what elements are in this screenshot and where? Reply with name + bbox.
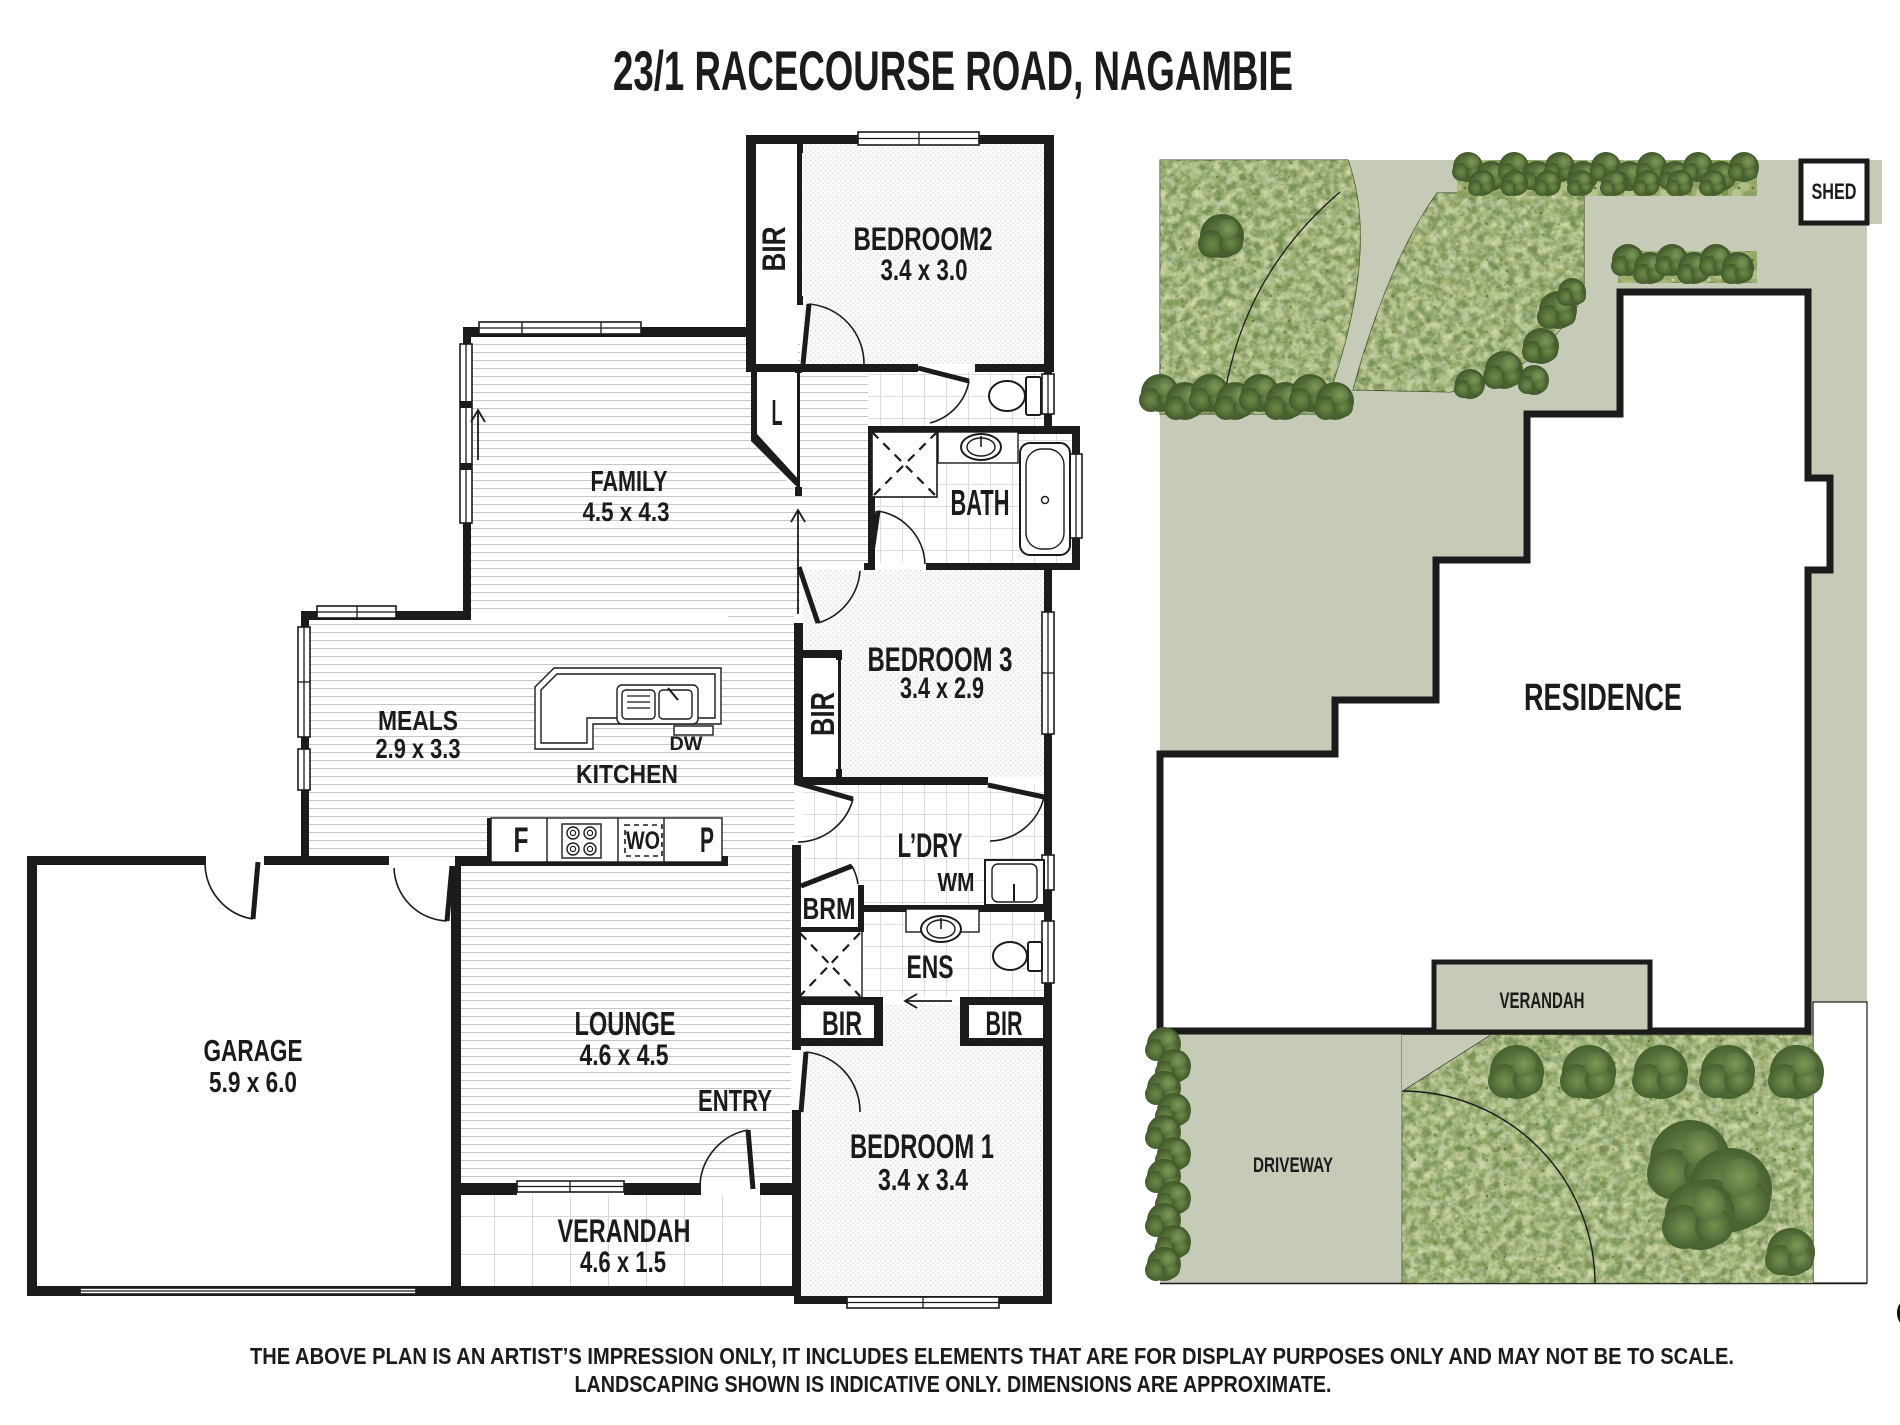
svg-text:THE ABOVE PLAN IS AN ARTIST’S: THE ABOVE PLAN IS AN ARTIST’S IMPRESSION… bbox=[250, 1343, 1734, 1369]
svg-text:23/1 RACECOURSE ROAD, NAGAMBIE: 23/1 RACECOURSE ROAD, NAGAMBIE bbox=[613, 39, 1293, 102]
svg-text:FAMILY: FAMILY bbox=[591, 466, 668, 498]
svg-text:2.9 x 3.3: 2.9 x 3.3 bbox=[376, 733, 461, 764]
svg-text:4.6 x 1.5: 4.6 x 1.5 bbox=[580, 1246, 666, 1279]
svg-text:ENS: ENS bbox=[907, 949, 954, 985]
svg-text:WO: WO bbox=[626, 827, 660, 855]
svg-text:4.5 x 4.3: 4.5 x 4.3 bbox=[583, 497, 670, 527]
svg-text:DRIVEWAY: DRIVEWAY bbox=[1253, 1154, 1333, 1177]
svg-text:P: P bbox=[700, 821, 714, 860]
svg-text:BATH: BATH bbox=[951, 482, 1010, 523]
svg-text:BIR: BIR bbox=[756, 227, 792, 272]
svg-text:3.4 x 2.9: 3.4 x 2.9 bbox=[900, 672, 984, 705]
svg-text:BEDROOM2: BEDROOM2 bbox=[854, 221, 993, 257]
svg-text:BEDROOM 1: BEDROOM 1 bbox=[850, 1128, 994, 1166]
svg-text:L: L bbox=[772, 392, 783, 433]
svg-text:3.4 x 3.0: 3.4 x 3.0 bbox=[881, 254, 968, 287]
svg-text:DW: DW bbox=[670, 734, 703, 755]
svg-text:VERANDAH: VERANDAH bbox=[558, 1213, 691, 1249]
svg-text:BRM: BRM bbox=[803, 891, 856, 926]
svg-text:L’DRY: L’DRY bbox=[898, 827, 963, 865]
svg-text:WM: WM bbox=[938, 867, 975, 897]
svg-text:F: F bbox=[514, 821, 529, 860]
svg-text:3.4 x 3.4: 3.4 x 3.4 bbox=[878, 1162, 969, 1197]
svg-text:VERANDAH: VERANDAH bbox=[1500, 988, 1585, 1013]
svg-text:GARAGE: GARAGE bbox=[204, 1033, 303, 1068]
svg-text:ENTRY: ENTRY bbox=[698, 1083, 772, 1118]
svg-text:LOUNGE: LOUNGE bbox=[575, 1005, 676, 1042]
svg-text:5.9 x 6.0: 5.9 x 6.0 bbox=[209, 1067, 297, 1099]
svg-text:KITCHEN: KITCHEN bbox=[576, 759, 678, 789]
svg-text:SHED: SHED bbox=[1812, 179, 1857, 204]
svg-text:RESIDENCE: RESIDENCE bbox=[1524, 677, 1682, 719]
svg-text:LANDSCAPING SHOWN IS INDICATIV: LANDSCAPING SHOWN IS INDICATIVE ONLY. DI… bbox=[575, 1371, 1332, 1397]
svg-text:4.6 x 4.5: 4.6 x 4.5 bbox=[580, 1039, 669, 1072]
svg-text:BIR: BIR bbox=[986, 1005, 1023, 1043]
svg-text:BIR: BIR bbox=[822, 1005, 862, 1043]
svg-text:BIR: BIR bbox=[804, 692, 841, 736]
svg-text:MEALS: MEALS bbox=[378, 705, 458, 736]
